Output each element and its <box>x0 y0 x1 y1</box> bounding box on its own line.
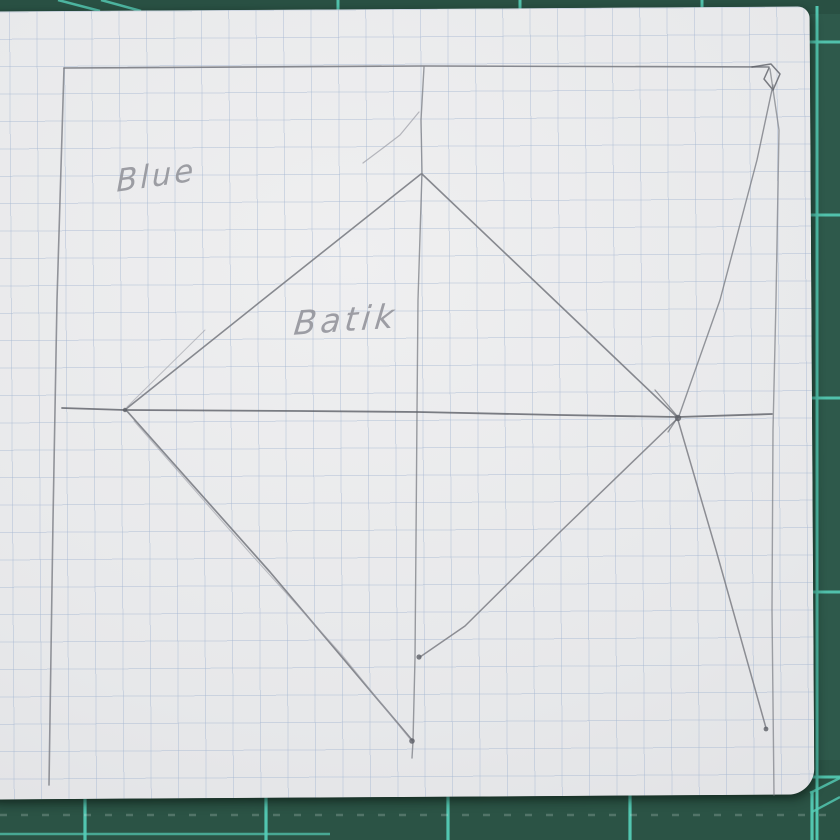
stray-pencil-arc <box>363 112 419 163</box>
pencil-dot-left-vertex <box>123 408 127 412</box>
pencil-dot-mid-vertical <box>416 654 421 659</box>
right-vertex-scribble <box>655 390 678 432</box>
center-to-corner-diagonal-lower <box>678 420 766 728</box>
square-left-edge <box>49 68 64 785</box>
square-right-edge <box>770 69 779 795</box>
diamond-edge-top-right <box>422 174 676 416</box>
handwritten-label-batik: Batik <box>292 296 400 343</box>
diamond-edge-top-left <box>126 174 421 409</box>
pencil-dot-right-vertex <box>675 415 681 421</box>
diamond-edge-bottom-right <box>420 419 677 657</box>
pencil-sketch <box>0 0 840 840</box>
diamond-edge-bottom-left-ghost <box>134 421 410 739</box>
square-top-edge <box>64 66 769 68</box>
corner-loop-scribble <box>752 64 780 90</box>
center-vertical-line <box>412 67 424 758</box>
center-horizontal-line <box>62 408 772 417</box>
corner-to-center-diagonal-upper <box>679 85 773 416</box>
pencil-dot-line-end <box>764 727 769 732</box>
pencil-dot-bottom-vertex <box>409 738 415 744</box>
photo-scene: Blue Batik <box>0 0 840 840</box>
diamond-edge-bottom-left <box>126 410 412 740</box>
diamond-edge-top-left-ghost <box>127 330 205 407</box>
